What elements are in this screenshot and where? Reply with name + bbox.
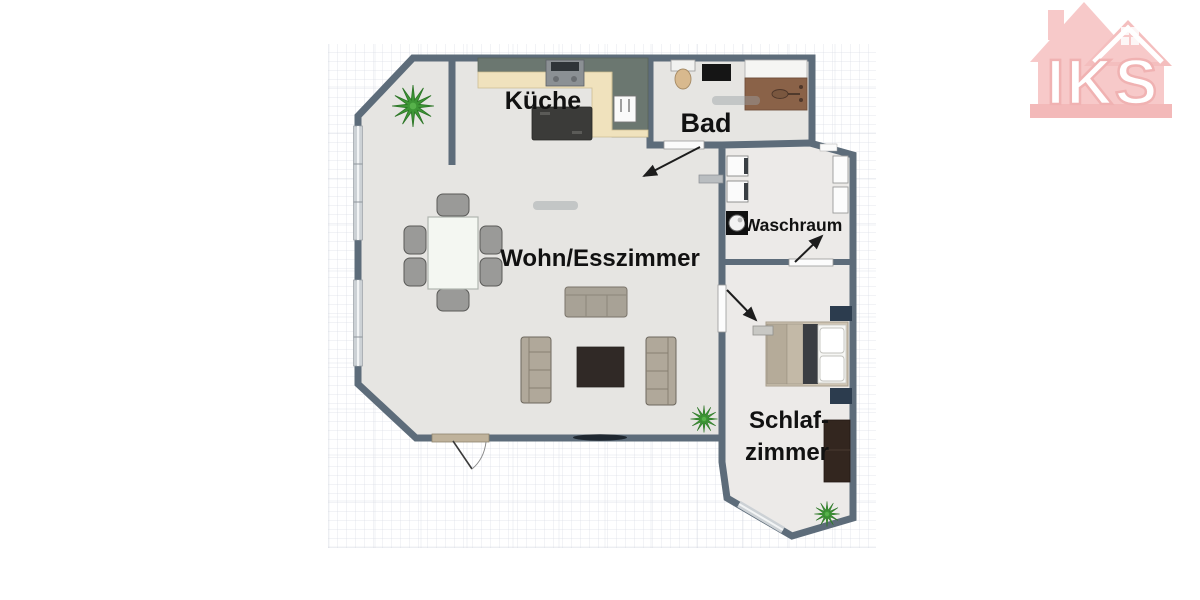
door-entrance	[432, 434, 489, 442]
bench	[753, 326, 773, 335]
room-label-waschraum: Waschraum	[744, 215, 843, 235]
shower-mat	[702, 64, 731, 81]
dining-table	[428, 217, 478, 289]
room-label-wohnesszimmer: Wohn/Esszimmer	[500, 245, 700, 272]
closet	[833, 156, 848, 183]
toilet-bowl	[675, 69, 691, 89]
floorplan-page: Küche Bad Wohn/Esszimmer Waschraum Schla…	[0, 0, 1200, 600]
fridge	[614, 96, 636, 122]
bed-dark-strip	[803, 324, 818, 384]
dining-chair	[437, 194, 469, 216]
door-swing	[472, 442, 486, 469]
pillow	[820, 356, 844, 381]
nightstand	[830, 388, 852, 404]
nightstand	[830, 306, 852, 321]
dining-chair	[480, 258, 502, 286]
dining-chair	[480, 226, 502, 254]
three-seat-sofa	[565, 287, 627, 317]
room-label-kueche: Küche	[505, 87, 582, 115]
iks-logo: IKS	[1030, 2, 1172, 118]
pillow	[820, 328, 844, 353]
sink	[772, 90, 788, 99]
rug	[577, 347, 624, 387]
bed-blanket	[787, 324, 803, 384]
room-label-schlafzimmer-line1: Schlaf-	[749, 407, 829, 434]
door-leaf	[453, 441, 472, 469]
watermark-smudge	[533, 201, 578, 210]
logo-text: IKS	[1047, 46, 1160, 118]
room-label-schlafzimmer-line2: zimmer	[745, 439, 829, 466]
floorplan: Küche Bad Wohn/Esszimmer Waschraum Schla…	[0, 0, 1200, 600]
dining-chair	[404, 258, 426, 286]
bathtub-top	[745, 60, 807, 78]
door-schlafzimmer	[718, 285, 726, 332]
closet	[833, 187, 848, 213]
radiator	[699, 175, 723, 183]
room-label-bad: Bad	[680, 108, 731, 138]
watermark-smudge	[712, 96, 760, 105]
threshold	[573, 434, 627, 440]
dining-chair	[404, 226, 426, 254]
dining-chair	[437, 289, 469, 311]
